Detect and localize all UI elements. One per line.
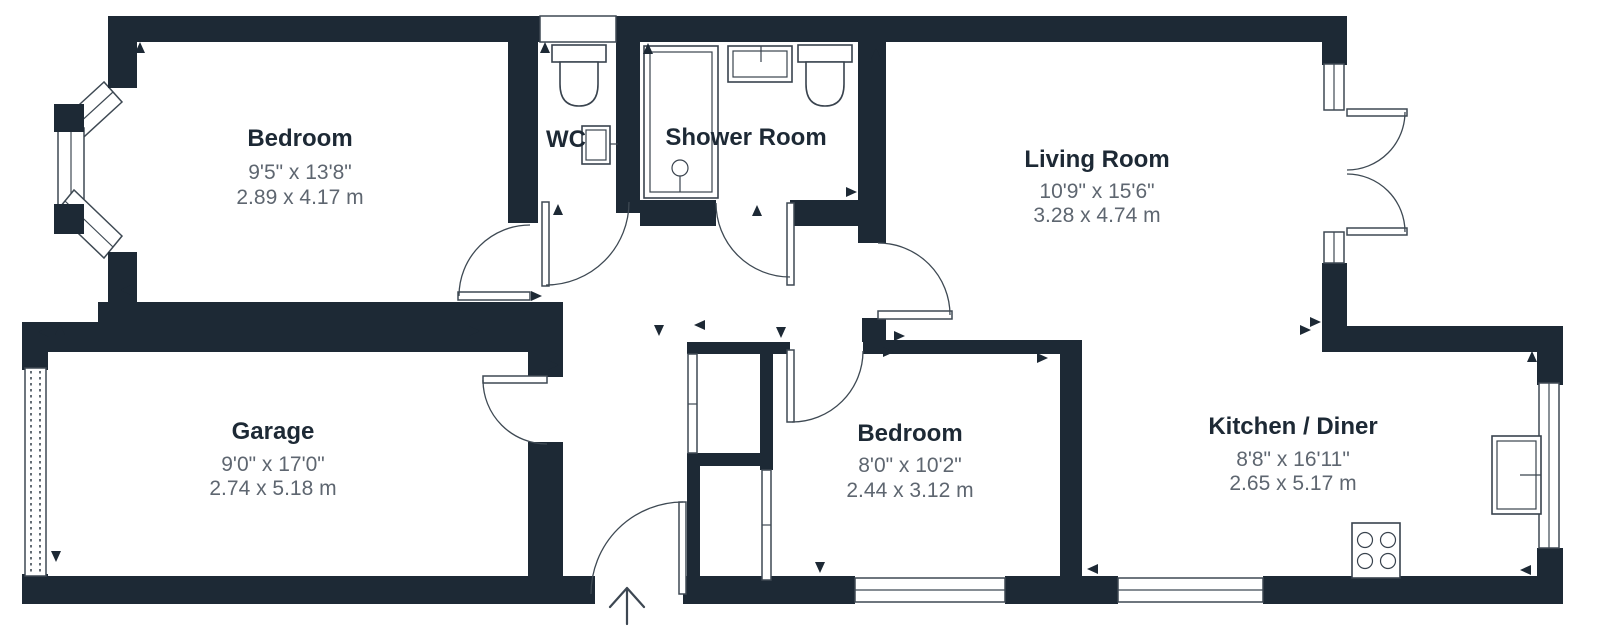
wall-segment [1005,576,1118,604]
direction-marker-icon [846,187,857,197]
wall-segment [22,576,563,604]
bay-corner [54,204,84,234]
wall-segment [863,340,1082,354]
room-dims-metric: 2.74 x 5.18 m [209,477,336,500]
direction-marker-icon [553,204,563,215]
wall-segment [687,453,700,583]
room-dims-imperial: 8'8" x 16'11" [1236,448,1350,471]
wall-segment [530,576,595,604]
door-leaf [458,292,530,300]
door-leaf [787,350,794,422]
room-label-bedroom-2: Bedroom [857,420,962,447]
direction-marker-icon [1300,325,1311,335]
direction-marker-icon [540,42,550,53]
door-swing-arc [459,225,530,296]
room-dims-imperial: 9'5" x 13'8" [248,161,352,184]
wall-segment [1322,42,1347,65]
living-room-door [878,243,952,319]
room-label-kitchen-diner: Kitchen / Diner [1208,413,1377,440]
window [540,16,616,42]
direction-marker-icon [1037,353,1048,363]
direction-marker-icon [1527,351,1537,362]
wall-segment [1537,352,1563,385]
direction-marker-icon [1087,564,1098,574]
direction-marker-icon [752,205,762,216]
hob-icon [1352,523,1400,578]
room-label-wc: WC [546,126,586,153]
room-dims-imperial: 9'0" x 17'0" [221,453,325,476]
door-leaf [1347,228,1407,235]
french-doors [1347,109,1407,235]
garage-door-panel [25,368,46,576]
wall-segment [528,442,563,582]
door-leaf [483,376,547,383]
wall-segment [1347,326,1563,352]
room-dims-metric: 2.65 x 5.17 m [1229,472,1356,495]
wall-segment [1322,263,1347,352]
wall-segment [616,16,1347,42]
direction-marker-icon [654,325,664,336]
wall-segment [687,342,790,354]
toilet-icon [798,45,852,106]
toilet-bowl [560,62,598,106]
wall-segment [790,200,858,226]
toilet-bowl [806,62,844,106]
wash-basin-icon [728,46,792,82]
room-label-living-room: Living Room [1024,146,1169,173]
toilet-cistern [798,45,852,62]
wall-segment [1060,354,1082,576]
bay-corner [108,252,137,302]
door-leaf [878,311,952,319]
room-dims-metric: 2.89 x 4.17 m [236,186,363,209]
direction-marker-icon [1520,565,1531,575]
toilet-cistern [552,45,606,62]
direction-marker-icon [1310,317,1321,327]
direction-marker-icon [776,327,786,338]
bedroom-2-door [787,350,863,422]
wall-segment [108,16,540,42]
room-dims-metric: 2.44 x 3.12 m [846,479,973,502]
door-swing-arc [792,351,863,422]
bay-window [54,42,137,302]
wall-segment [858,42,886,243]
wall-segment [760,342,773,470]
direction-marker-icon [694,320,705,330]
direction-marker-icon [51,551,61,562]
room-dims-imperial: 8'0" x 10'2" [858,454,962,477]
room-dims-metric: 3.28 x 4.74 m [1033,204,1160,227]
wall-segment [862,318,886,342]
kitchen-sink-icon [1492,436,1541,514]
floor-plan-canvas: Bedroom 9'5" x 13'8" 2.89 x 4.17 m WC Sh… [0,0,1600,634]
door-swing-arc [878,243,950,315]
door-swing-arc [591,502,683,594]
wall-segment [640,200,716,226]
door-leaf [787,203,794,285]
toilet-icon [552,45,606,106]
door-leaf [679,502,686,594]
direction-marker-icon [815,562,825,573]
bay-corner [54,104,84,132]
wall-segment [1263,576,1563,604]
door-swing-arc [483,380,547,444]
bay-corner [108,42,137,88]
garage-door [25,368,46,576]
shower-outer [644,46,718,198]
wall-segment [22,322,48,370]
wall-segment [98,302,563,352]
wall-segment [616,42,640,213]
room-label-garage: Garage [232,418,315,445]
shower-enclosure-icon [644,46,718,198]
room-label-bedroom-1: Bedroom [247,125,352,152]
entrance-arrow-path [610,588,644,624]
door-swing-arc [1347,174,1405,232]
room-label-shower-room: Shower Room [665,124,826,151]
garage-internal-door [483,376,547,444]
direction-marker-icon [531,291,542,301]
entrance-arrow-icon [610,588,644,624]
room-dims-imperial: 10'9" x 15'6" [1039,180,1154,203]
direction-marker-icon [894,331,905,341]
wash-basin-icon [582,126,618,164]
door-leaf [542,202,549,286]
floor-plan: Bedroom 9'5" x 13'8" 2.89 x 4.17 m WC Sh… [0,0,1600,634]
door-leaf [1347,109,1407,116]
bedroom-1-door [458,225,530,300]
front-door [591,502,686,594]
hob-outer [1352,523,1400,578]
door-swing-arc [1347,112,1405,170]
wall-segment [508,42,538,223]
